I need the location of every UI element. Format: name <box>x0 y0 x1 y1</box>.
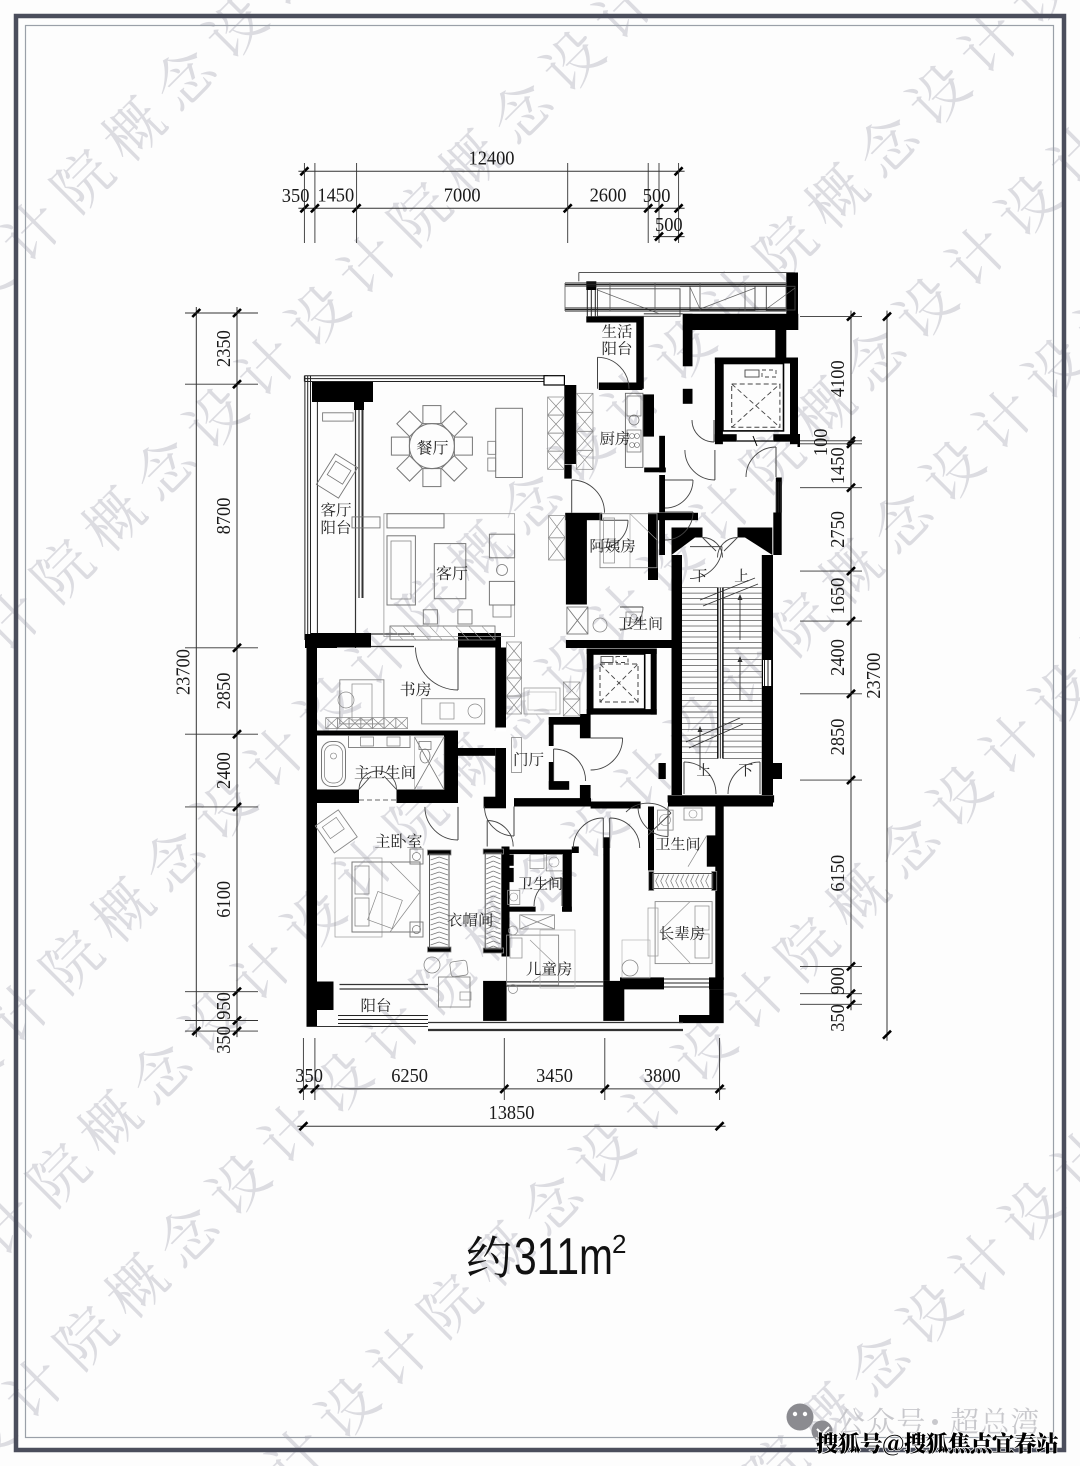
svg-text:12400: 12400 <box>469 147 515 169</box>
svg-text:350: 350 <box>282 185 310 207</box>
svg-text:3800: 3800 <box>644 1065 681 1087</box>
svg-text:3450: 3450 <box>536 1065 573 1087</box>
svg-text:2850: 2850 <box>213 673 235 710</box>
svg-text:2600: 2600 <box>590 184 627 206</box>
svg-text:350: 350 <box>827 1004 849 1032</box>
svg-text:4100: 4100 <box>827 360 849 397</box>
svg-text:2400: 2400 <box>827 639 849 676</box>
svg-text:7000: 7000 <box>444 184 481 206</box>
svg-text:100: 100 <box>810 429 832 457</box>
svg-text:13850: 13850 <box>489 1102 535 1124</box>
svg-text:350: 350 <box>213 1026 235 1054</box>
svg-text:6250: 6250 <box>391 1065 428 1087</box>
svg-text:6150: 6150 <box>827 855 849 892</box>
svg-text:23700: 23700 <box>172 649 194 695</box>
svg-text:2750: 2750 <box>827 511 849 548</box>
svg-text:23700: 23700 <box>863 653 885 699</box>
svg-text:6100: 6100 <box>213 881 235 918</box>
svg-text:2400: 2400 <box>213 752 235 789</box>
svg-text:1650: 1650 <box>827 578 849 615</box>
svg-text:8700: 8700 <box>213 498 235 535</box>
svg-text:2: 2 <box>612 1229 626 1259</box>
svg-text:1450: 1450 <box>317 184 354 206</box>
svg-text:900: 900 <box>827 967 849 995</box>
svg-text:500: 500 <box>643 185 671 207</box>
svg-text:2850: 2850 <box>827 719 849 756</box>
svg-text:500: 500 <box>655 214 683 236</box>
svg-text:950: 950 <box>213 992 235 1020</box>
svg-text:350: 350 <box>295 1065 323 1087</box>
svg-text:311m: 311m <box>514 1228 613 1286</box>
svg-text:2350: 2350 <box>213 330 235 367</box>
